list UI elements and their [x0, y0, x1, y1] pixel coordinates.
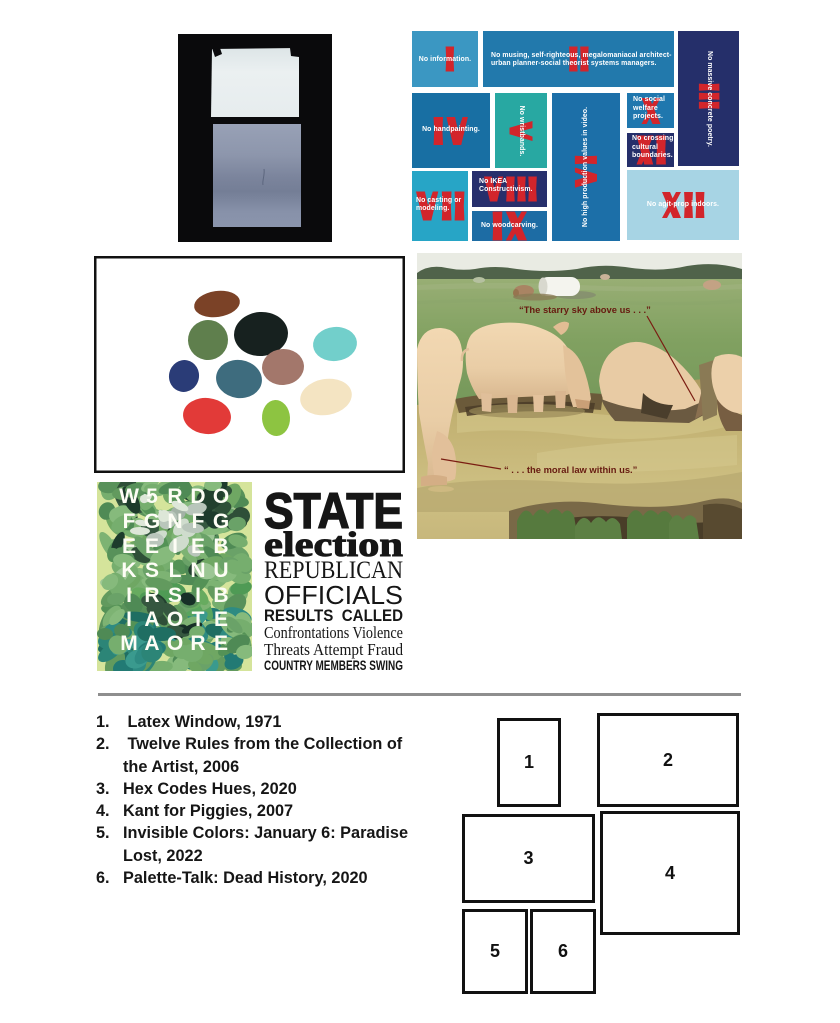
svg-text:S: S: [168, 584, 182, 607]
svg-text:S: S: [145, 559, 159, 582]
svg-text:A: A: [144, 632, 159, 655]
svg-text:W: W: [119, 485, 139, 508]
svg-text:COUNTRY MEMBERS SWING: COUNTRY MEMBERS SWING: [264, 657, 403, 673]
svg-text:N: N: [167, 510, 182, 533]
svg-text:O: O: [167, 608, 183, 631]
svg-text:I: I: [126, 584, 132, 607]
svg-text:E: E: [214, 608, 228, 631]
svg-text:K: K: [121, 559, 136, 582]
svg-text:F: F: [123, 510, 136, 533]
svg-text:B: B: [213, 584, 228, 607]
svg-text:R: R: [144, 584, 159, 607]
svg-text:D: D: [190, 485, 205, 508]
svg-text:E: E: [145, 535, 159, 558]
svg-text:N: N: [190, 559, 205, 582]
svg-text:“ . . . the moral law within u: “ . . . the moral law within us.”: [504, 464, 637, 475]
svg-text:5: 5: [146, 485, 158, 508]
svg-text:A: A: [144, 608, 159, 631]
svg-text:I: I: [195, 584, 201, 607]
svg-text:U: U: [213, 559, 228, 582]
svg-text:T: T: [192, 608, 205, 631]
svg-text:M: M: [120, 632, 138, 655]
svg-text:I: I: [126, 608, 132, 631]
svg-text:O: O: [213, 485, 229, 508]
svg-text:G: G: [144, 510, 160, 533]
svg-text:O: O: [167, 632, 183, 655]
svg-text:“The starry sky above us . . .: “The starry sky above us . . .”: [519, 304, 651, 315]
svg-text:R: R: [190, 632, 205, 655]
svg-text:E: E: [122, 535, 136, 558]
svg-text:L: L: [169, 559, 182, 582]
svg-text:R: R: [167, 485, 182, 508]
svg-text:I: I: [172, 535, 178, 558]
svg-text:E: E: [191, 535, 205, 558]
svg-text:F: F: [192, 510, 205, 533]
svg-text:E: E: [214, 632, 228, 655]
svg-text:B: B: [213, 535, 228, 558]
svg-text:G: G: [213, 510, 229, 533]
